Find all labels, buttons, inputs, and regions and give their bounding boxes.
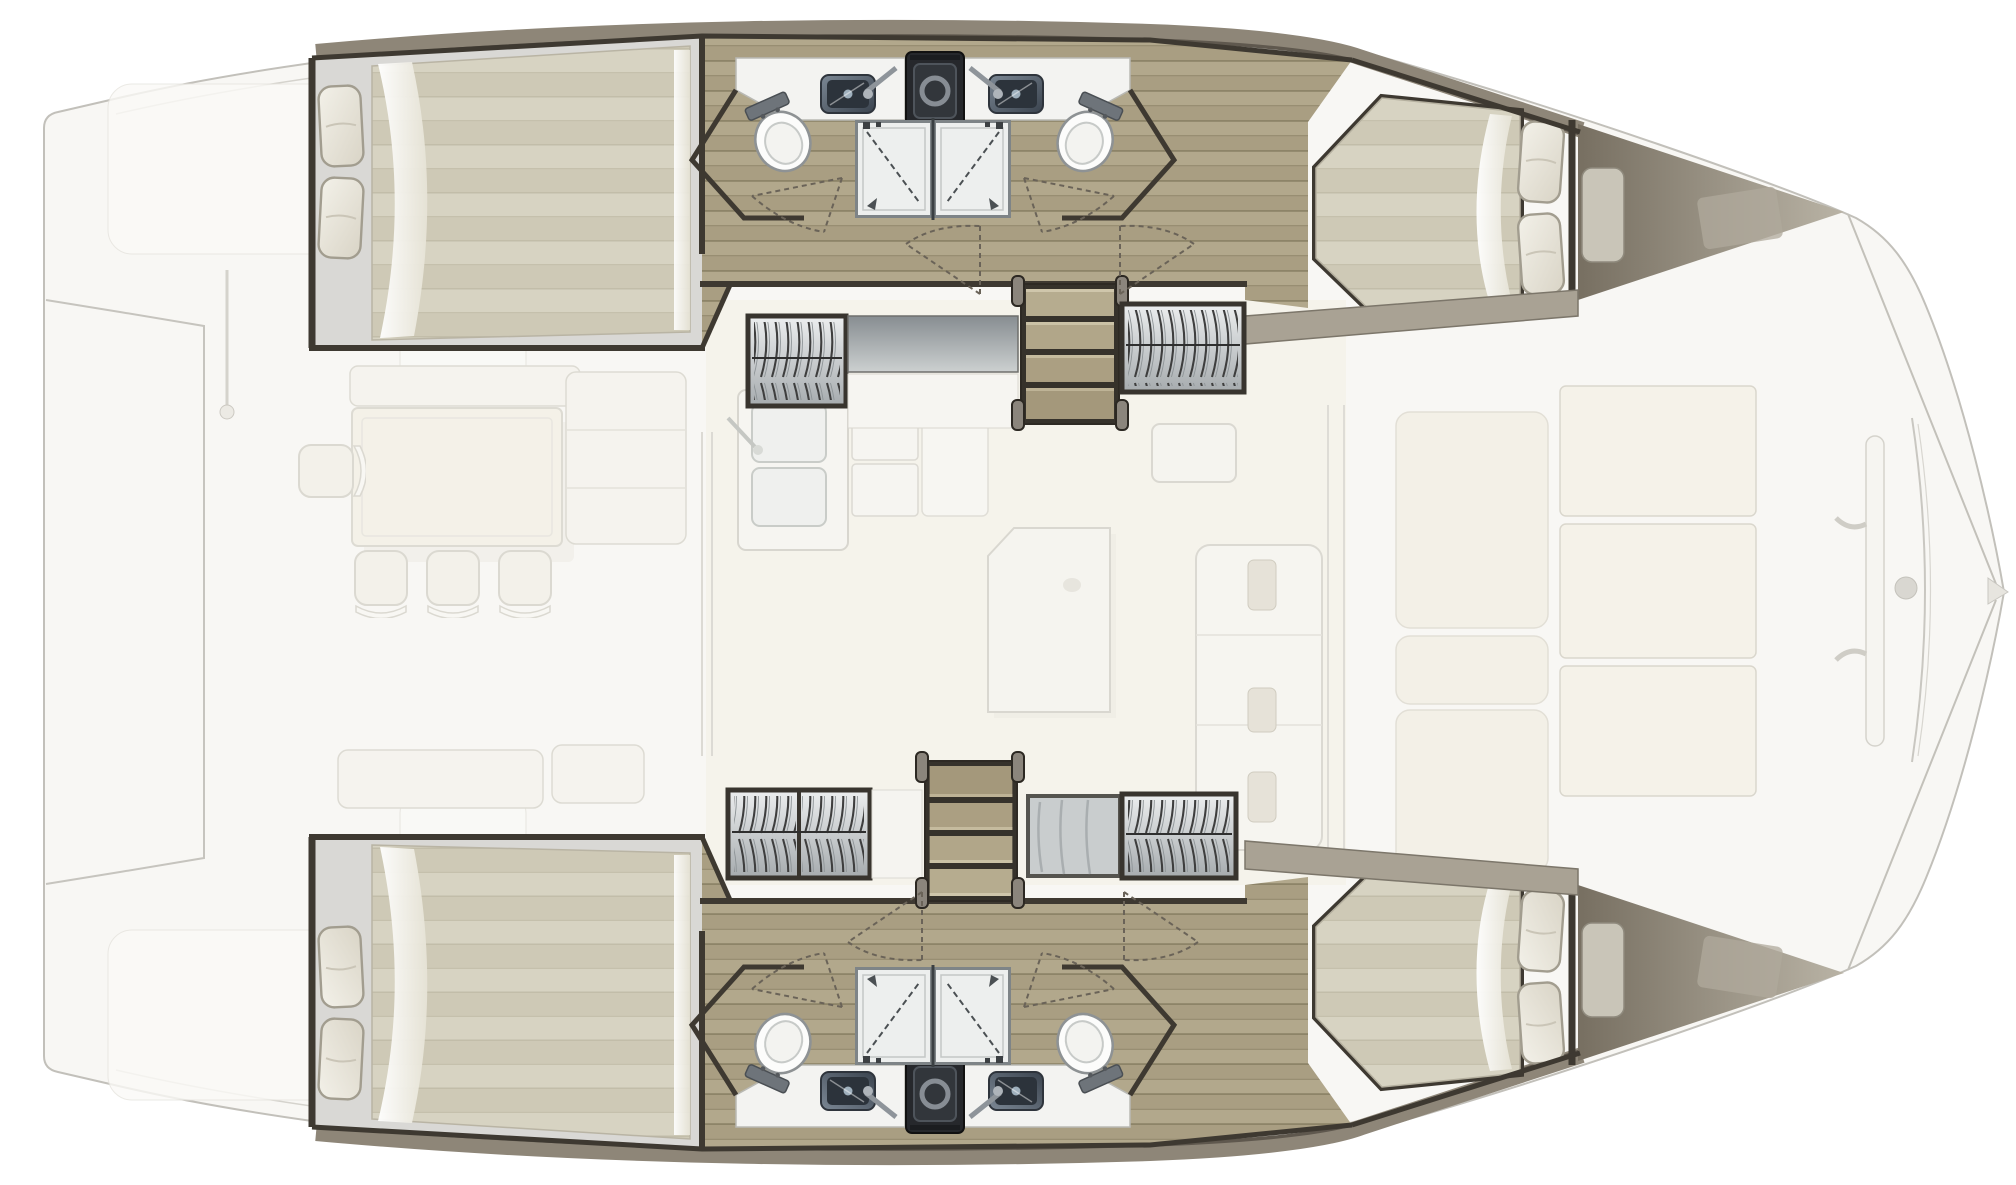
foredeck-seat-panel xyxy=(1396,412,1548,628)
floorplan-canvas xyxy=(0,0,2016,1185)
hanging-clothes-icon xyxy=(1128,310,1238,386)
hanging-locker xyxy=(748,316,846,406)
hanging-locker xyxy=(1122,304,1244,392)
sofa-pad xyxy=(1248,560,1276,610)
sofa-icon xyxy=(338,750,543,808)
sofa-icon xyxy=(566,372,686,544)
berth-cushion xyxy=(1028,796,1120,876)
hanging-clothes-icon xyxy=(754,322,840,400)
hanging-locker xyxy=(728,790,870,878)
galley-sink-icon xyxy=(752,468,826,526)
hanging-clothes-icon xyxy=(1128,800,1230,872)
galley-faucet-base xyxy=(753,445,763,455)
galley-sink-icon xyxy=(752,404,826,462)
table-icon xyxy=(352,408,562,546)
trampoline-icon xyxy=(1560,524,1756,658)
cockpit-bench xyxy=(350,366,580,406)
hanging-clothes-icon xyxy=(802,796,864,872)
foredeck-seat-panel xyxy=(1396,636,1548,704)
galley-cabinet xyxy=(852,464,918,516)
bow-crossbeam xyxy=(1866,436,1884,746)
trampoline-icon xyxy=(1560,386,1756,516)
saloon-table xyxy=(988,528,1110,712)
hanging-clothes-icon xyxy=(734,796,796,872)
bow-fitting xyxy=(1895,577,1917,599)
bench-seat xyxy=(848,316,1018,372)
sofa-pad xyxy=(1248,688,1276,732)
sofa-pad xyxy=(1248,772,1276,822)
floorplan-page xyxy=(0,0,2016,1185)
foredeck-seat-panel xyxy=(1396,710,1548,872)
flagpole-ball xyxy=(220,405,234,419)
trampoline-icon xyxy=(1560,666,1756,796)
hull-entry-floor xyxy=(848,374,1018,428)
hull-entry-floor xyxy=(872,790,922,878)
table-detail xyxy=(1063,578,1081,592)
stairs-icon xyxy=(924,760,1018,902)
cockpit-side-table xyxy=(552,745,644,803)
nav-bench xyxy=(1152,424,1236,482)
stairs-icon xyxy=(1020,283,1120,425)
hanging-locker xyxy=(1122,794,1236,878)
